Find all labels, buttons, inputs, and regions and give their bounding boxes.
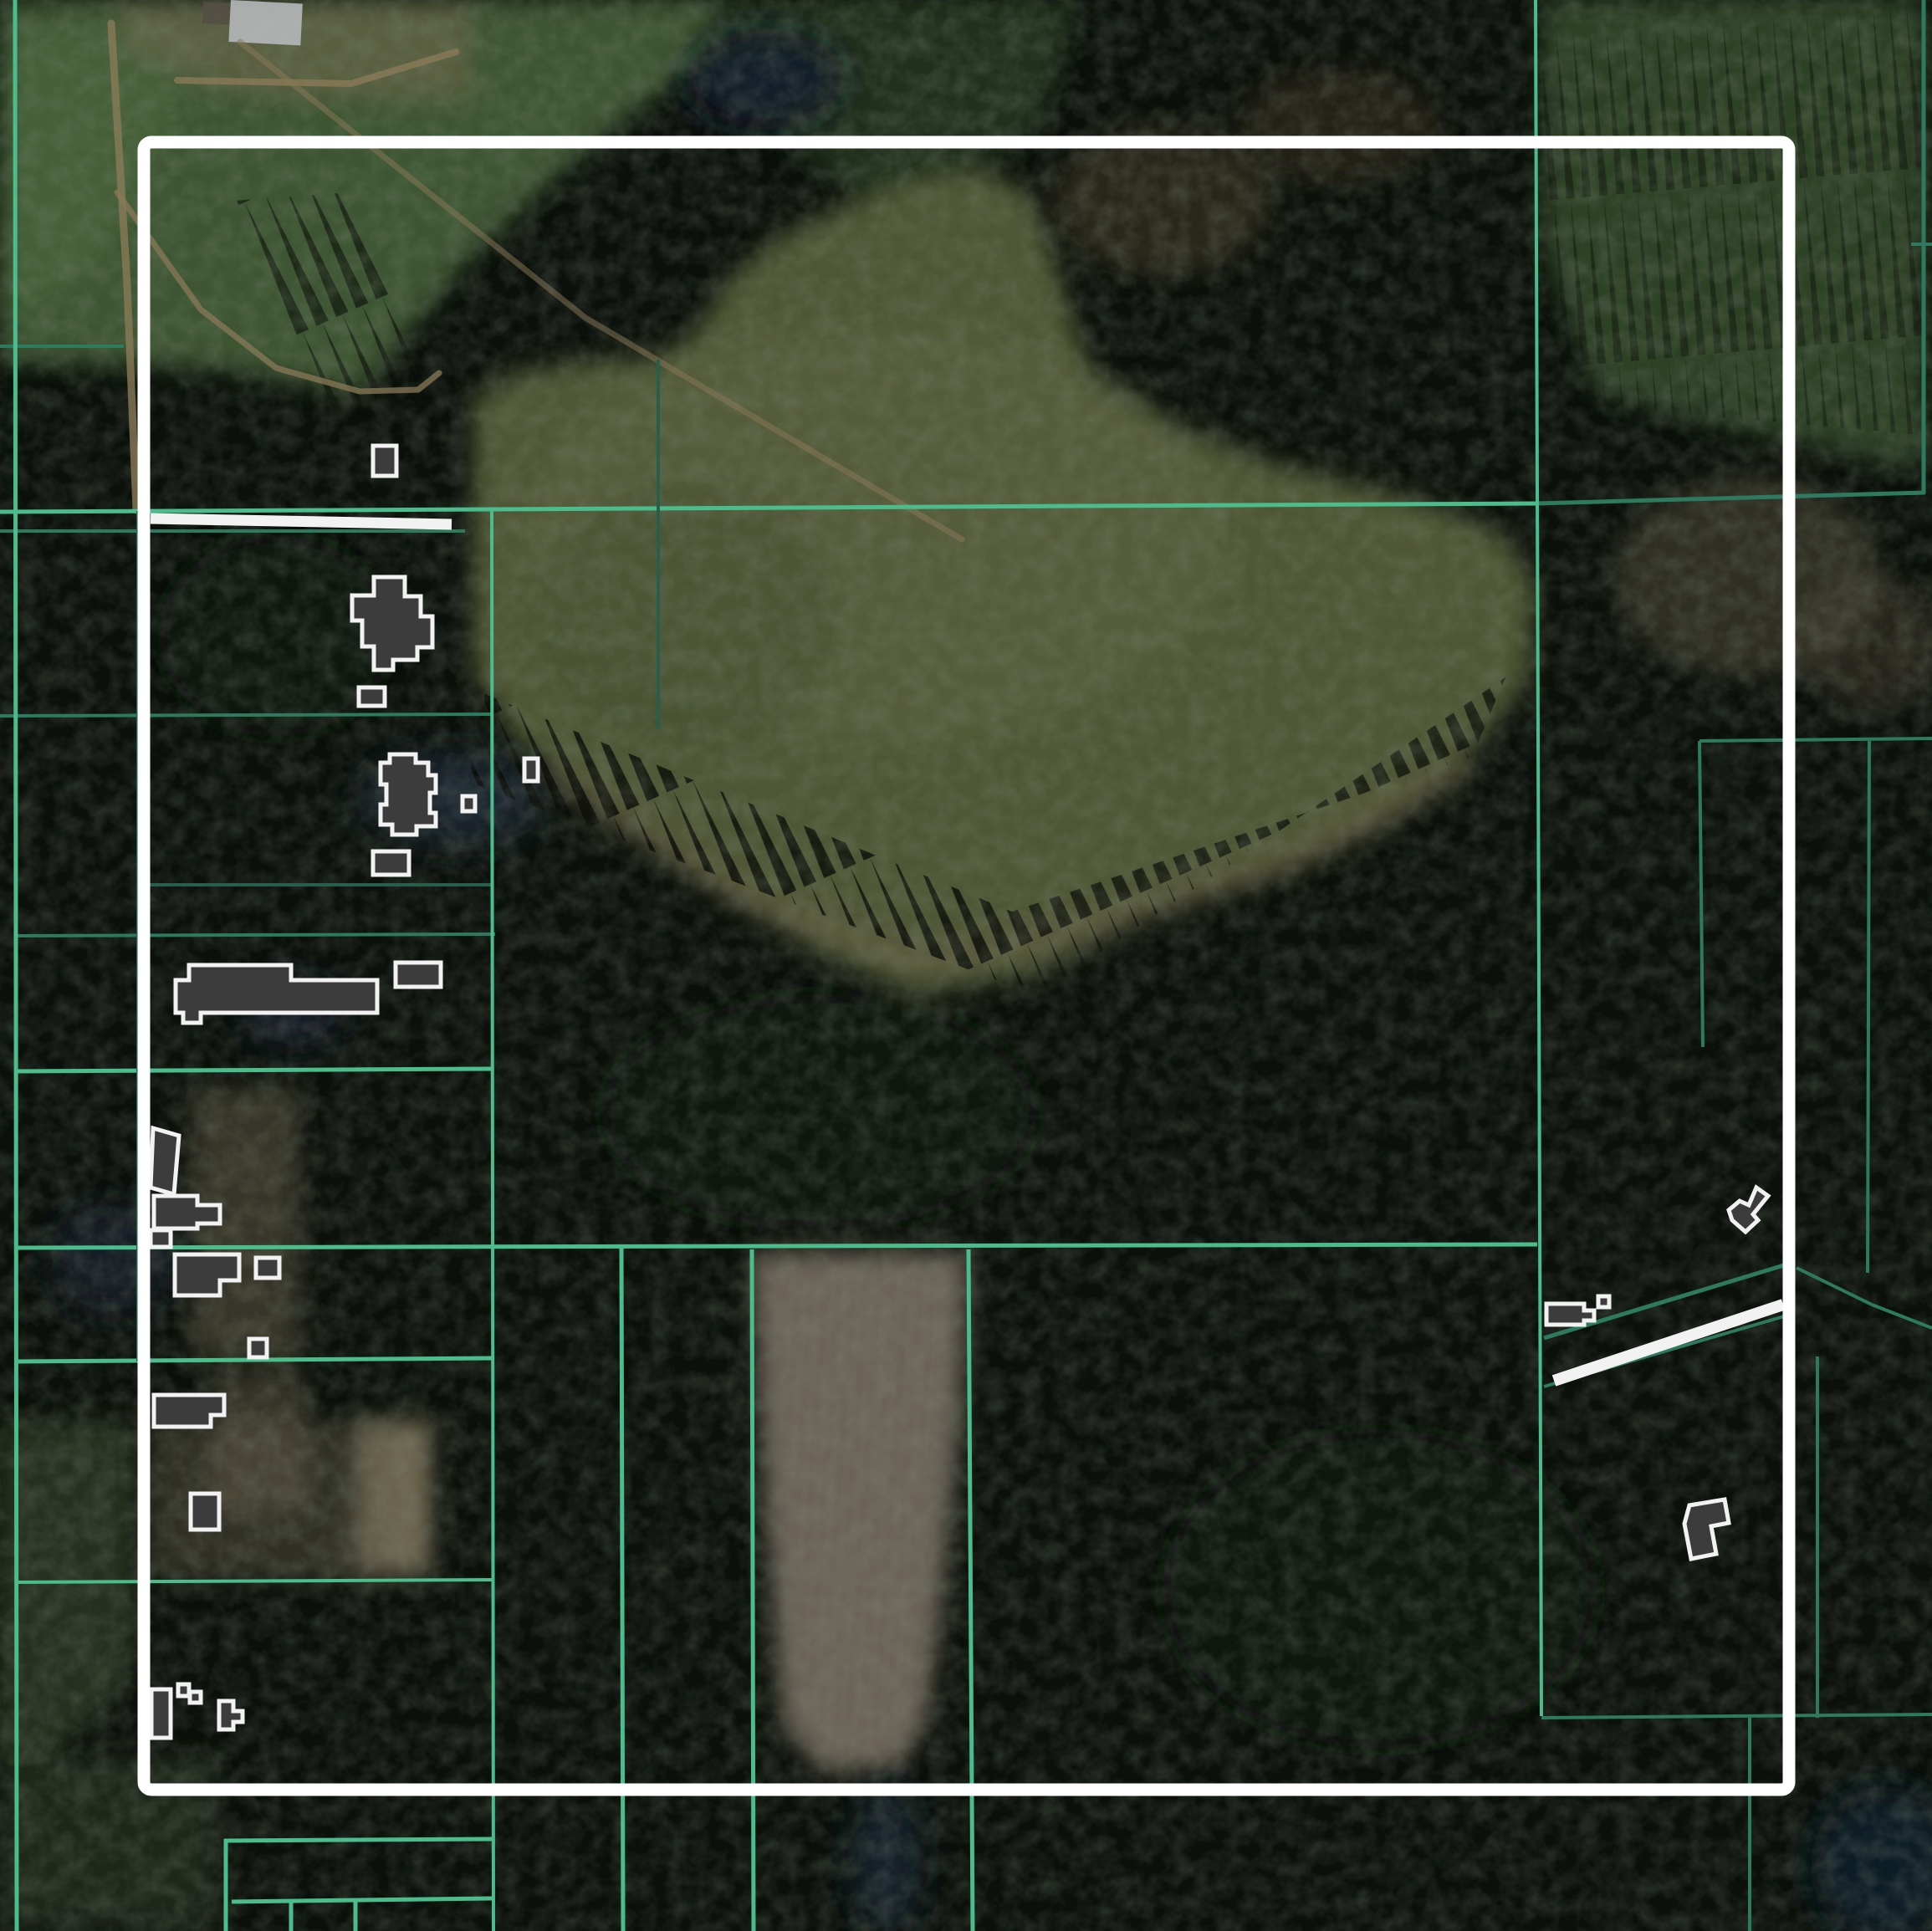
building-footprint	[359, 687, 385, 706]
building-footprint	[151, 1230, 171, 1247]
building-footprint	[190, 1692, 201, 1703]
parcel-boundary-line	[17, 934, 495, 936]
building-footprint	[463, 796, 475, 811]
building-footprint	[396, 963, 441, 987]
building-footprint	[151, 1128, 179, 1194]
building-footprint	[373, 446, 396, 476]
farm-roof	[202, 2, 230, 25]
farm-roof	[228, 0, 302, 45]
parcel-boundary-line	[15, 0, 17, 1931]
parcel-boundary-line	[224, 1839, 493, 1841]
parcel-boundary-line	[0, 714, 492, 716]
building-footprint	[151, 1689, 171, 1738]
map-render-surface	[0, 0, 1932, 1931]
parcel-boundary-line	[0, 509, 493, 512]
building-footprint	[381, 754, 436, 835]
building-footprint	[256, 1258, 279, 1278]
parcel-boundary-line	[752, 1249, 754, 1931]
road-centerline-overlay	[151, 519, 452, 524]
building-footprint	[1598, 1296, 1609, 1307]
building-footprint	[373, 851, 409, 875]
building-footprint	[524, 759, 538, 781]
building-footprint	[191, 1494, 219, 1530]
satellite-map-canvas[interactable]	[0, 0, 1932, 1931]
building-footprint	[178, 1684, 189, 1696]
parcel-boundary-line	[1868, 741, 1869, 1273]
parcel-boundary-line	[15, 1069, 493, 1071]
building-footprint	[249, 1339, 267, 1357]
parcel-boundary-line	[492, 510, 493, 1931]
parcel-boundary-line	[621, 1246, 623, 1931]
